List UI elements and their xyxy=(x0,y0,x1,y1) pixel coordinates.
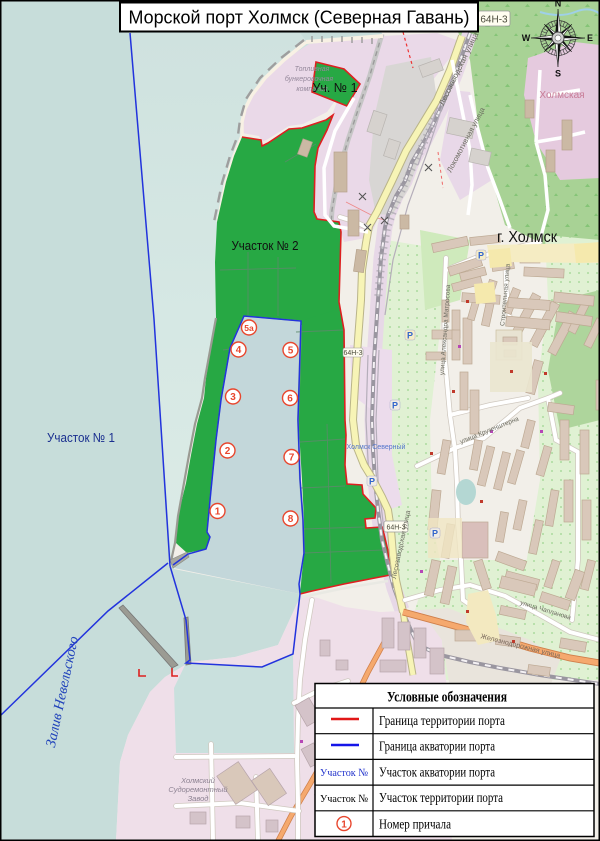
svg-text:Участок территории порта: Участок территории порта xyxy=(379,790,503,805)
svg-text:S: S xyxy=(555,69,561,79)
svg-text:6: 6 xyxy=(287,394,293,405)
svg-text:P: P xyxy=(432,529,438,539)
svg-text:Участок № 2: Участок № 2 xyxy=(232,238,299,253)
svg-text:5: 5 xyxy=(288,346,294,357)
svg-text:2: 2 xyxy=(225,446,231,457)
svg-text:7: 7 xyxy=(289,453,295,464)
svg-text:Уч. № 1: Уч. № 1 xyxy=(313,80,358,95)
svg-text:Холмск Северный: Холмск Северный xyxy=(347,443,406,451)
svg-text:64Н-3: 64Н-3 xyxy=(343,350,362,357)
svg-text:P: P xyxy=(407,331,413,341)
svg-text:P: P xyxy=(392,401,398,411)
svg-text:Топливная: Топливная xyxy=(295,66,330,73)
svg-text:8: 8 xyxy=(288,514,294,525)
svg-text:Участок №: Участок № xyxy=(320,767,368,779)
svg-text:Холмская: Холмская xyxy=(539,90,584,101)
svg-text:P: P xyxy=(369,477,375,487)
svg-text:Участок №: Участок № xyxy=(320,793,368,805)
svg-text:г. Холмск: г. Холмск xyxy=(497,229,557,246)
svg-text:E: E xyxy=(587,33,593,43)
svg-text:Завод: Завод xyxy=(188,794,209,803)
svg-text:5а: 5а xyxy=(244,323,254,333)
svg-text:Морской порт Холмск (Северная: Морской порт Холмск (Северная Гавань) xyxy=(129,7,470,28)
svg-text:1: 1 xyxy=(341,819,347,830)
svg-text:Судоремонтный: Судоремонтный xyxy=(168,785,228,794)
svg-text:64Н-3: 64Н-3 xyxy=(480,15,508,26)
svg-text:Номер причала: Номер причала xyxy=(379,816,451,831)
svg-text:Холмский: Холмский xyxy=(180,776,216,785)
svg-text:P: P xyxy=(478,251,484,261)
svg-text:Условные обозначения: Условные обозначения xyxy=(387,690,507,706)
svg-text:Граница территории порта: Граница территории порта xyxy=(379,713,505,728)
svg-text:3: 3 xyxy=(230,392,236,403)
svg-text:Граница акватории порта: Граница акватории порта xyxy=(379,739,495,754)
svg-text:1: 1 xyxy=(215,507,221,518)
svg-text:4: 4 xyxy=(236,345,242,356)
svg-text:Участок № 1: Участок № 1 xyxy=(47,430,115,445)
svg-text:W: W xyxy=(522,33,531,43)
svg-text:Участок акватории порта: Участок акватории порта xyxy=(379,764,495,779)
